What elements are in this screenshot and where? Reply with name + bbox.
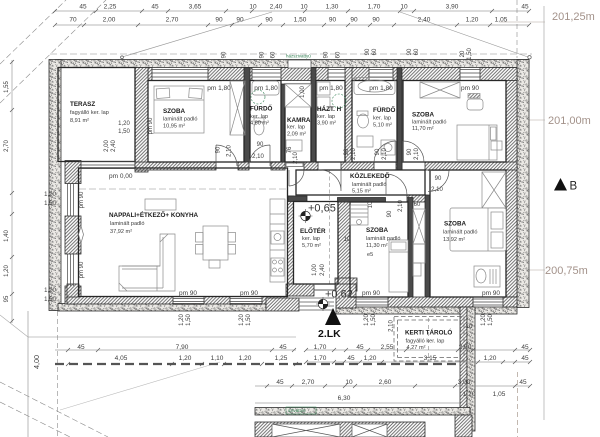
svg-text:1,50: 1,50: [44, 201, 56, 207]
svg-text:2,40: 2,40: [111, 140, 117, 152]
svg-text:fagyálló ker. lap: fagyálló ker. lap: [70, 110, 109, 116]
svg-text:10: 10: [368, 201, 374, 208]
svg-text:3,90: 3,90: [446, 4, 459, 11]
svg-text:laminált padló: laminált padló: [163, 117, 198, 123]
svg-text:1,10: 1,10: [211, 355, 224, 362]
svg-text:1,70: 1,70: [314, 355, 327, 362]
svg-text:45: 45: [276, 379, 284, 386]
svg-text:ker. lap: ker. lap: [250, 114, 268, 120]
svg-text:pm 1,80: pm 1,80: [254, 85, 278, 92]
svg-text:1,30: 1,30: [326, 4, 339, 11]
svg-text:1,70: 1,70: [368, 4, 381, 11]
svg-text:90: 90: [435, 176, 442, 182]
svg-text:2,09 m²: 2,09 m²: [287, 132, 306, 138]
svg-text:szivattyú: szivattyú: [288, 408, 306, 413]
svg-text:1,50: 1,50: [371, 314, 377, 326]
svg-text:FÜRDŐ: FÜRDŐ: [250, 104, 272, 113]
svg-text:1,50: 1,50: [186, 314, 192, 326]
svg-text:45: 45: [521, 4, 529, 11]
svg-text:201,25m: 201,25m: [552, 11, 595, 23]
svg-text:laminált padló: laminált padló: [352, 182, 387, 188]
svg-text:10: 10: [344, 237, 351, 243]
svg-text:2,10: 2,10: [398, 200, 404, 212]
svg-text:10: 10: [465, 323, 473, 330]
svg-text:KÖZLEKEDŐ: KÖZLEKEDŐ: [350, 171, 390, 180]
svg-text:NAPPALI+ÉTKEZŐ+ KONYHA: NAPPALI+ÉTKEZŐ+ KONYHA: [109, 210, 199, 219]
svg-text:TERASZ: TERASZ: [70, 101, 95, 108]
svg-text:1,20: 1,20: [4, 265, 10, 277]
svg-text:pm 90: pm 90: [79, 191, 85, 208]
svg-text:1,20: 1,20: [364, 355, 377, 362]
svg-text:201,00m: 201,00m: [548, 115, 591, 127]
svg-text:11,30 m²: 11,30 m²: [366, 243, 388, 249]
svg-text:laminált padló: laminált padló: [110, 221, 145, 227]
svg-text:2,40: 2,40: [320, 264, 326, 276]
svg-text:8,91 m²: 8,91 m²: [70, 118, 89, 124]
svg-text:SZOBA: SZOBA: [163, 108, 185, 115]
svg-text:90: 90: [324, 51, 330, 58]
svg-text:200,75m: 200,75m: [545, 265, 588, 277]
svg-text:házszivattyú: házszivattyú: [286, 54, 311, 59]
svg-text:5,70 m²: 5,70 m²: [302, 243, 321, 249]
svg-text:SZOBA: SZOBA: [412, 112, 434, 119]
svg-text:2,25: 2,25: [104, 4, 117, 11]
svg-text:pm 0,00: pm 0,00: [109, 173, 133, 180]
svg-text:60: 60: [414, 48, 420, 55]
svg-text:pm 1,80: pm 1,80: [207, 85, 231, 92]
svg-text:ker. lap: ker. lap: [287, 125, 305, 131]
svg-text:45: 45: [519, 379, 527, 386]
svg-text:95: 95: [4, 295, 10, 302]
svg-text:1,20: 1,20: [463, 391, 476, 398]
svg-text:2,70: 2,70: [166, 17, 179, 24]
svg-text:60: 60: [336, 51, 342, 58]
svg-text:2,70: 2,70: [4, 140, 10, 152]
svg-text:ker. lap: ker. lap: [302, 236, 320, 242]
svg-text:13,92 m²: 13,92 m²: [443, 237, 465, 243]
svg-text:1,50: 1,50: [294, 17, 307, 24]
svg-text:2,10: 2,10: [227, 145, 233, 157]
svg-text:90: 90: [265, 17, 273, 24]
svg-text:2,10: 2,10: [293, 152, 299, 164]
svg-text:1,40: 1,40: [4, 230, 10, 242]
svg-text:1,50: 1,50: [246, 314, 252, 326]
svg-text:2,40: 2,40: [418, 17, 431, 24]
svg-text:90: 90: [407, 48, 413, 55]
svg-text:2,00: 2,00: [104, 140, 110, 152]
svg-text:HÁZT. H: HÁZT. H: [317, 104, 342, 113]
svg-text:1,20: 1,20: [239, 314, 245, 326]
svg-text:37,92 m²: 37,92 m²: [110, 229, 132, 235]
svg-text:1,20: 1,20: [239, 355, 252, 362]
svg-text:70: 70: [69, 17, 77, 24]
svg-text:1,20: 1,20: [118, 121, 130, 127]
svg-text:60: 60: [372, 48, 378, 55]
svg-text:90: 90: [215, 17, 223, 24]
svg-text:45: 45: [347, 355, 355, 362]
svg-text:4,80 m²: 4,80 m²: [250, 121, 269, 127]
svg-text:pm 90: pm 90: [148, 117, 154, 134]
svg-text:20: 20: [460, 50, 466, 57]
svg-text:5,15 m²: 5,15 m²: [352, 189, 371, 195]
svg-text:e5: e5: [367, 252, 373, 258]
svg-text:laminált padló: laminált padló: [443, 230, 478, 236]
svg-text:4,05: 4,05: [115, 355, 128, 362]
svg-text:90: 90: [257, 142, 264, 148]
svg-text:90: 90: [236, 17, 244, 24]
svg-text:pm 1,80: pm 1,80: [319, 85, 343, 92]
svg-text:90: 90: [365, 48, 371, 55]
svg-text:90: 90: [260, 51, 266, 58]
svg-text:FÜRDŐ: FÜRDŐ: [373, 105, 395, 114]
svg-text:45: 45: [79, 4, 87, 11]
svg-text:1,55: 1,55: [4, 81, 10, 93]
svg-text:1,00: 1,00: [312, 264, 318, 276]
svg-text:10,95 m²: 10,95 m²: [163, 124, 185, 130]
svg-text:4,00: 4,00: [32, 355, 41, 369]
svg-text:3,00: 3,00: [458, 379, 471, 386]
svg-text:90: 90: [344, 148, 350, 155]
svg-text:+0,62: +0,62: [325, 289, 353, 301]
svg-text:3,90 m²: 3,90 m²: [317, 121, 336, 127]
svg-text:90: 90: [329, 17, 337, 24]
svg-text:5,10 m²: 5,10 m²: [373, 123, 392, 129]
svg-text:ELŐTÉR: ELŐTÉR: [300, 226, 326, 235]
svg-text:1,20: 1,20: [466, 17, 479, 24]
svg-text:+0,65: +0,65: [308, 203, 336, 215]
svg-text:ker. lap: ker. lap: [317, 114, 335, 120]
svg-text:90: 90: [375, 148, 381, 155]
svg-text:1,20: 1,20: [179, 314, 185, 326]
svg-text:2.LK: 2.LK: [318, 328, 341, 340]
svg-text:90: 90: [387, 210, 393, 217]
svg-text:1,50: 1,50: [118, 129, 130, 135]
svg-text:1,20: 1,20: [44, 192, 56, 198]
svg-text:SZOBA: SZOBA: [444, 221, 466, 228]
svg-text:90: 90: [216, 146, 222, 153]
svg-text:1,20: 1,20: [179, 355, 192, 362]
svg-text:SZOBA: SZOBA: [366, 227, 388, 234]
svg-text:2,10: 2,10: [382, 148, 388, 160]
svg-text:1,20: 1,20: [484, 355, 497, 362]
svg-text:6,30: 6,30: [338, 395, 351, 402]
svg-text:45: 45: [521, 355, 529, 362]
svg-text:KERTI TÁROLÓ: KERTI TÁROLÓ: [405, 328, 452, 337]
svg-text:11,70 m²: 11,70 m²: [412, 126, 434, 132]
svg-text:laminált padló: laminált padló: [366, 236, 401, 242]
svg-text:pm 90: pm 90: [461, 85, 479, 92]
svg-text:1,00: 1,00: [300, 86, 306, 98]
svg-text:90: 90: [407, 148, 413, 155]
svg-text:3,65: 3,65: [189, 4, 202, 11]
svg-text:90: 90: [222, 51, 228, 58]
svg-text:1,50: 1,50: [44, 297, 56, 303]
svg-text:pm 90: pm 90: [240, 290, 258, 297]
svg-text:90: 90: [350, 17, 358, 24]
svg-text:B: B: [570, 181, 578, 193]
svg-text:1,50: 1,50: [488, 314, 494, 326]
svg-text:2,10: 2,10: [414, 148, 420, 160]
svg-text:fagyálló ker. lap: fagyálló ker. lap: [406, 339, 445, 345]
svg-text:2,00: 2,00: [103, 17, 116, 24]
svg-text:45: 45: [151, 4, 159, 11]
svg-text:2,10: 2,10: [351, 148, 357, 160]
svg-text:2,40: 2,40: [270, 4, 283, 11]
svg-text:2,10: 2,10: [252, 154, 264, 160]
svg-text:1,05: 1,05: [493, 391, 506, 398]
svg-text:2,10: 2,10: [389, 320, 395, 332]
svg-text:60: 60: [414, 202, 421, 208]
svg-text:pm 90: pm 90: [362, 290, 380, 297]
svg-text:1,25: 1,25: [275, 355, 288, 362]
svg-text:ker. lap: ker. lap: [373, 116, 391, 122]
svg-text:90: 90: [372, 17, 380, 24]
svg-text:laminált padló: laminált padló: [412, 120, 447, 126]
svg-text:1,20: 1,20: [481, 314, 487, 326]
svg-text:1,05: 1,05: [495, 17, 508, 24]
svg-text:1,50: 1,50: [467, 48, 473, 60]
svg-text:pm 90: pm 90: [179, 290, 197, 297]
svg-text:1,20: 1,20: [44, 288, 56, 294]
svg-text:pm 90: pm 90: [482, 290, 500, 297]
svg-text:2,60: 2,60: [379, 379, 392, 386]
svg-text:pm 1,80: pm 1,80: [369, 85, 393, 92]
svg-text:KAMRA: KAMRA: [287, 117, 311, 124]
svg-text:60: 60: [271, 51, 277, 58]
svg-text:1,20: 1,20: [364, 314, 370, 326]
svg-text:pm 90: pm 90: [79, 261, 85, 278]
svg-text:2,70: 2,70: [302, 379, 315, 386]
svg-text:2,10: 2,10: [431, 187, 443, 193]
